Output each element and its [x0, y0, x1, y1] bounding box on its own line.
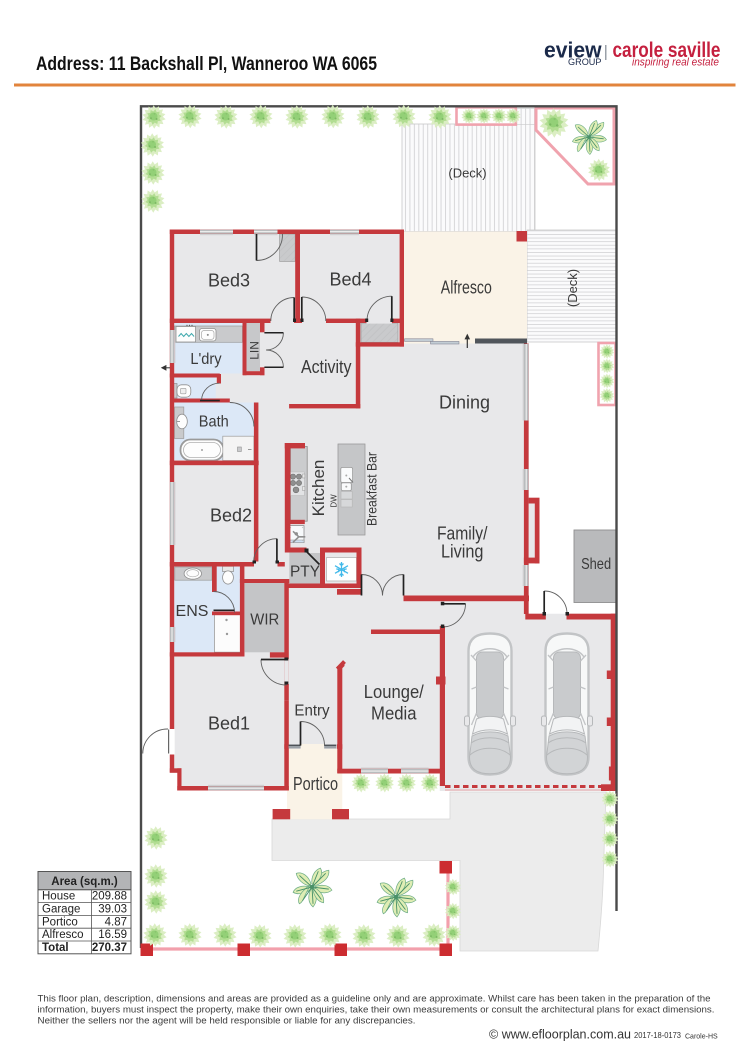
svg-text:Shed: Shed: [581, 556, 611, 573]
svg-text:PTY: PTY: [290, 564, 320, 581]
svg-text:information, buyers must inspe: information, buyers must inspect the pro…: [38, 1005, 715, 1016]
svg-text:inspiring real estate: inspiring real estate: [632, 57, 719, 69]
svg-text:LIN: LIN: [248, 341, 262, 360]
svg-text:WIR: WIR: [250, 612, 279, 629]
svg-text:House: House: [42, 891, 75, 903]
svg-text:4.87: 4.87: [105, 916, 127, 928]
svg-text:Lounge/: Lounge/: [364, 682, 424, 702]
svg-text:Total: Total: [42, 942, 69, 954]
svg-text:(Deck): (Deck): [448, 166, 486, 181]
svg-text:© www.efloorplan.com.au: © www.efloorplan.com.au: [489, 1027, 631, 1042]
svg-text:Breakfast Bar: Breakfast Bar: [364, 452, 380, 526]
svg-text:16.59: 16.59: [98, 929, 127, 941]
svg-text:Media: Media: [371, 703, 417, 723]
svg-text:Family/: Family/: [437, 523, 488, 543]
svg-text:Dining: Dining: [439, 393, 490, 413]
svg-text:GROUP: GROUP: [568, 57, 602, 68]
svg-text:Garage: Garage: [42, 904, 80, 916]
svg-text:39.03: 39.03: [98, 904, 127, 916]
svg-text:Bed1: Bed1: [208, 714, 250, 734]
svg-text:L'dry: L'dry: [190, 351, 221, 368]
svg-text:DW: DW: [330, 494, 339, 508]
svg-text:Bath: Bath: [199, 414, 229, 431]
svg-text:Neither the sellers nor the ag: Neither the sellers nor the agent will b…: [38, 1016, 416, 1027]
svg-text:Carole-HS: Carole-HS: [685, 1034, 718, 1041]
svg-text:Bed2: Bed2: [210, 506, 252, 526]
svg-text:(Deck): (Deck): [565, 269, 580, 307]
svg-text:270.37: 270.37: [92, 942, 127, 954]
svg-text:Portico: Portico: [293, 774, 338, 794]
svg-text:Bed4: Bed4: [329, 270, 371, 290]
svg-text:Entry: Entry: [294, 703, 329, 720]
svg-text:Living: Living: [441, 542, 484, 562]
svg-text:Activity: Activity: [301, 357, 352, 377]
svg-text:Address: 11 Backshall Pl, Wann: Address: 11 Backshall Pl, Wanneroo WA 60…: [36, 53, 377, 75]
svg-text:209.88: 209.88: [92, 891, 127, 903]
svg-text:Alfresco: Alfresco: [441, 278, 492, 298]
svg-text:Kitchen: Kitchen: [309, 460, 328, 517]
svg-text:Bed3: Bed3: [208, 271, 250, 291]
svg-text:Alfresco: Alfresco: [42, 929, 84, 941]
svg-text:This floor plan, description,: This floor plan, description, dimensions…: [38, 994, 711, 1005]
svg-text:ENS: ENS: [176, 603, 209, 620]
svg-text:Area (sq.m.): Area (sq.m.): [51, 876, 118, 888]
svg-text:2017-18-0173: 2017-18-0173: [634, 1030, 681, 1040]
svg-text:Portico: Portico: [42, 916, 78, 928]
